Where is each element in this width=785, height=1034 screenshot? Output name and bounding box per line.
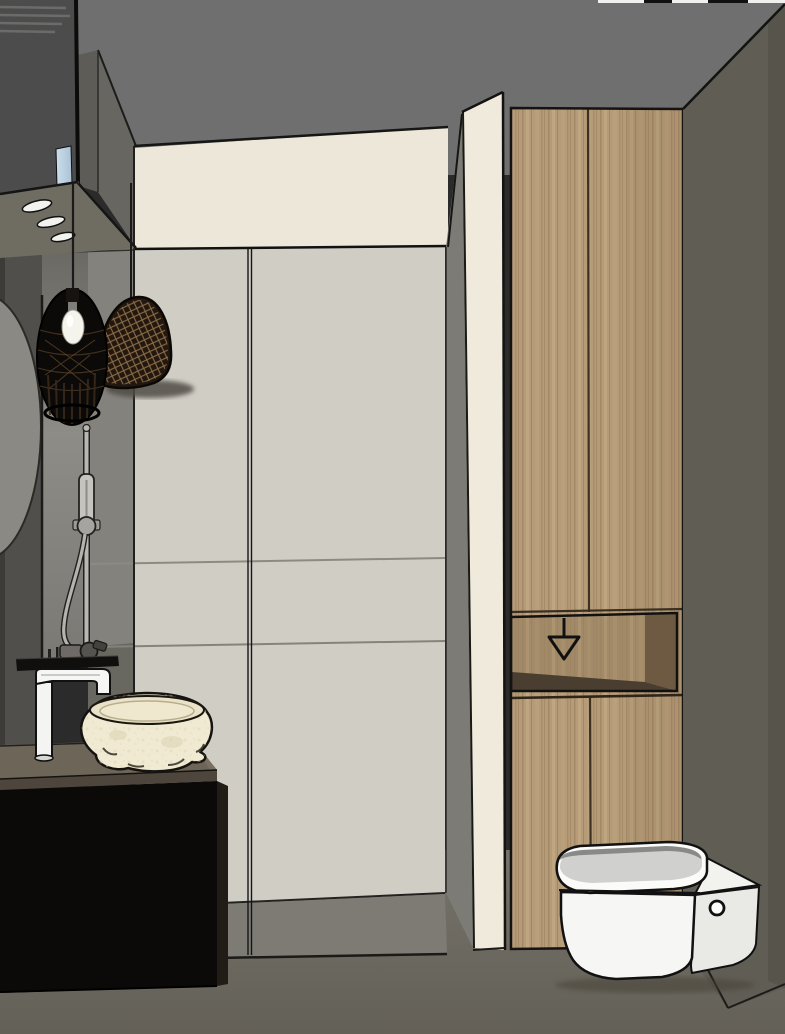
toilet-shadow [555,977,755,993]
faucet-body [36,682,52,758]
faucet-base [35,755,53,761]
cabinet-niche [511,612,677,691]
bulkhead-band [134,127,448,250]
vanity-cabinet-side [217,781,228,986]
vanity-cabinet [0,781,217,993]
rail-slider-knob [78,517,96,535]
flush-hole [710,901,724,915]
left-upper-wall [78,50,98,192]
vanity [0,739,228,993]
tall-cabinet [511,108,683,949]
pendant-lamp-barrel [37,288,107,425]
light-bulb-icon [62,310,84,344]
wall-outlet [60,645,82,658]
stone-vessel-sink [81,693,212,771]
lamp-cap [66,288,79,302]
toilet-bowl-front [561,892,695,979]
bathroom-render: 3D interior rendering of a modern bathro… [0,0,785,1034]
led-strip [56,146,72,187]
upper-door-seam [588,109,589,612]
right-wall-corner [768,4,785,988]
cabinet-front-edge [76,0,78,183]
